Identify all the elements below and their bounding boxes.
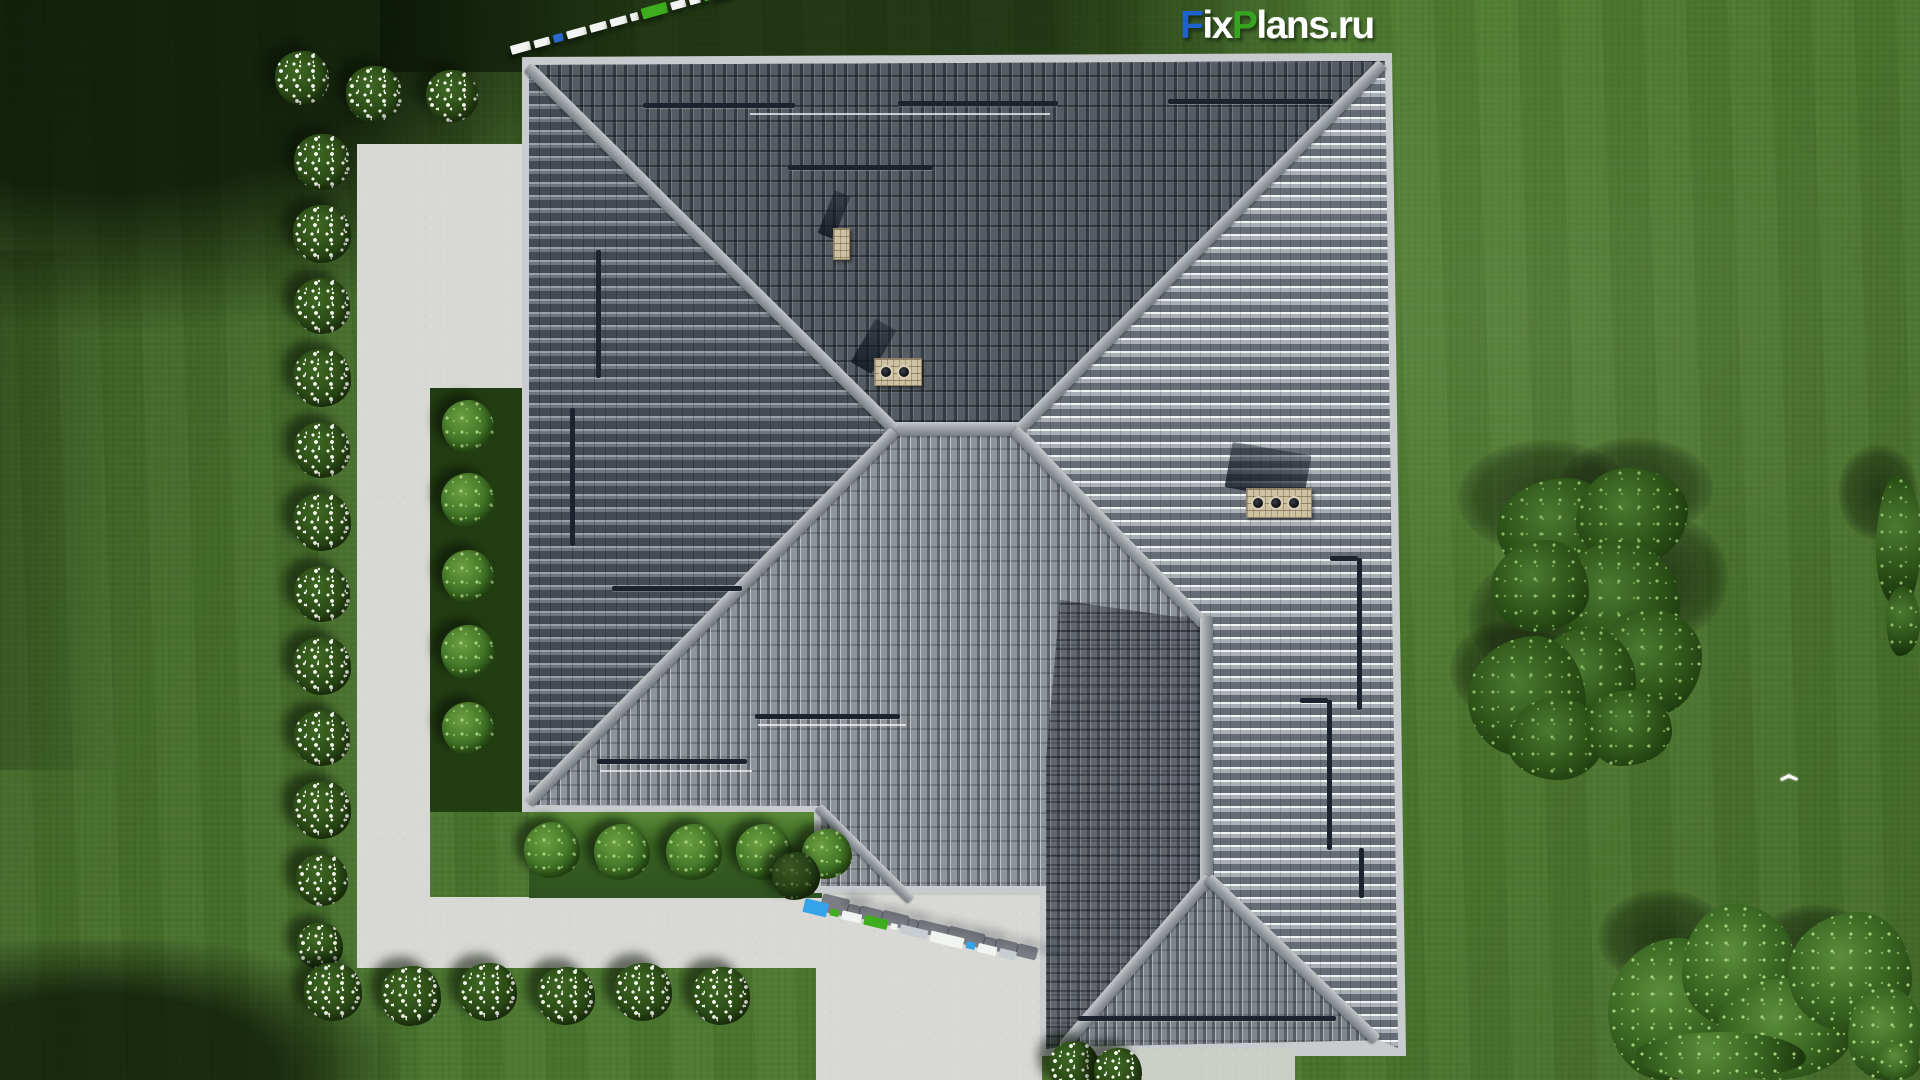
chimney-pot bbox=[1287, 496, 1301, 510]
strip-piece bbox=[977, 942, 998, 955]
chimney-pot bbox=[1251, 496, 1265, 510]
strip-piece bbox=[566, 26, 587, 39]
logo-part: P bbox=[1232, 4, 1257, 47]
flower-bush bbox=[275, 51, 329, 105]
chimney-pot bbox=[897, 365, 911, 379]
batten-highlight bbox=[600, 770, 752, 772]
snow-bar bbox=[1168, 99, 1333, 104]
strip-piece bbox=[703, 0, 712, 1]
snow-bar bbox=[1357, 558, 1362, 710]
green-bush bbox=[442, 400, 494, 452]
chimney-pot bbox=[879, 365, 893, 379]
snow-bar bbox=[612, 586, 742, 591]
strip-piece bbox=[829, 908, 839, 917]
snow-bar bbox=[570, 408, 575, 546]
flower-bush bbox=[294, 422, 350, 478]
logo-part: .ru bbox=[1328, 4, 1373, 47]
green-bush bbox=[441, 473, 495, 527]
walkway-left bbox=[357, 144, 430, 968]
flower-bush bbox=[304, 963, 362, 1021]
strip-piece bbox=[966, 941, 976, 950]
aerial-site-view: FixPlans.ru bbox=[0, 0, 1920, 1080]
flower-bush bbox=[294, 134, 350, 190]
strip-piece bbox=[533, 36, 551, 48]
flower-bush bbox=[346, 66, 402, 122]
snow-bar bbox=[1359, 848, 1364, 898]
snow-bar bbox=[597, 759, 747, 764]
snow-bar bbox=[1078, 1016, 1336, 1021]
green-bush bbox=[442, 702, 494, 754]
strip-piece bbox=[688, 0, 701, 5]
flower-bush bbox=[293, 781, 351, 839]
fixplans-watermark: FixPlans.ru bbox=[1180, 6, 1374, 45]
logo-part: F bbox=[1180, 4, 1202, 47]
roof-ridge-vertical bbox=[1200, 616, 1213, 882]
green-bush bbox=[666, 824, 722, 880]
bird-icon bbox=[1780, 772, 1798, 784]
flower-bush bbox=[294, 710, 350, 766]
strip-piece bbox=[998, 948, 1017, 961]
snow-bar bbox=[596, 250, 601, 378]
green-bush bbox=[441, 625, 495, 679]
logo-part: ix bbox=[1202, 4, 1232, 47]
snow-bar bbox=[1300, 698, 1328, 703]
snow-bar bbox=[755, 714, 900, 719]
snow-bar bbox=[643, 103, 795, 108]
strip-piece bbox=[552, 32, 564, 42]
chimney bbox=[874, 358, 922, 386]
chimney bbox=[833, 228, 850, 260]
snow-bar bbox=[788, 165, 933, 170]
snow-bar bbox=[1330, 556, 1358, 561]
strip-piece bbox=[629, 11, 639, 21]
flower-bush bbox=[293, 349, 351, 407]
strip-piece bbox=[890, 923, 898, 930]
strip-piece bbox=[589, 20, 608, 32]
logo-part: lans bbox=[1256, 4, 1328, 47]
flower-bush bbox=[294, 278, 350, 334]
batten-highlight bbox=[750, 113, 1050, 115]
flower-bush bbox=[692, 967, 750, 1025]
flower-bush bbox=[459, 963, 517, 1021]
flower-bush bbox=[293, 493, 351, 551]
strip-piece bbox=[609, 15, 628, 27]
flower-bush bbox=[296, 854, 348, 906]
batten-highlight bbox=[758, 724, 906, 726]
walkway-front bbox=[1133, 1048, 1295, 1080]
flower-bush bbox=[1049, 1041, 1099, 1080]
flower-bush bbox=[614, 963, 672, 1021]
flower-bush bbox=[293, 205, 351, 263]
chimney bbox=[1246, 488, 1312, 518]
green-bush bbox=[772, 852, 820, 900]
chimney-pot bbox=[1269, 496, 1283, 510]
flower-bush bbox=[537, 967, 595, 1025]
green-bush bbox=[524, 822, 580, 878]
green-bush bbox=[594, 824, 650, 880]
green-bush bbox=[442, 550, 494, 602]
flower-bush bbox=[426, 70, 478, 122]
flower-bush bbox=[293, 637, 351, 695]
flower-bush bbox=[381, 966, 441, 1026]
strip-piece bbox=[670, 0, 687, 10]
flower-bush bbox=[294, 566, 350, 622]
tree-canopy bbox=[1876, 1040, 1920, 1080]
strip-piece bbox=[841, 910, 863, 923]
walkway-bottom bbox=[357, 897, 823, 968]
snow-bar bbox=[1327, 700, 1332, 850]
roof-ridge-main bbox=[889, 422, 1023, 436]
snow-bar bbox=[898, 101, 1058, 106]
